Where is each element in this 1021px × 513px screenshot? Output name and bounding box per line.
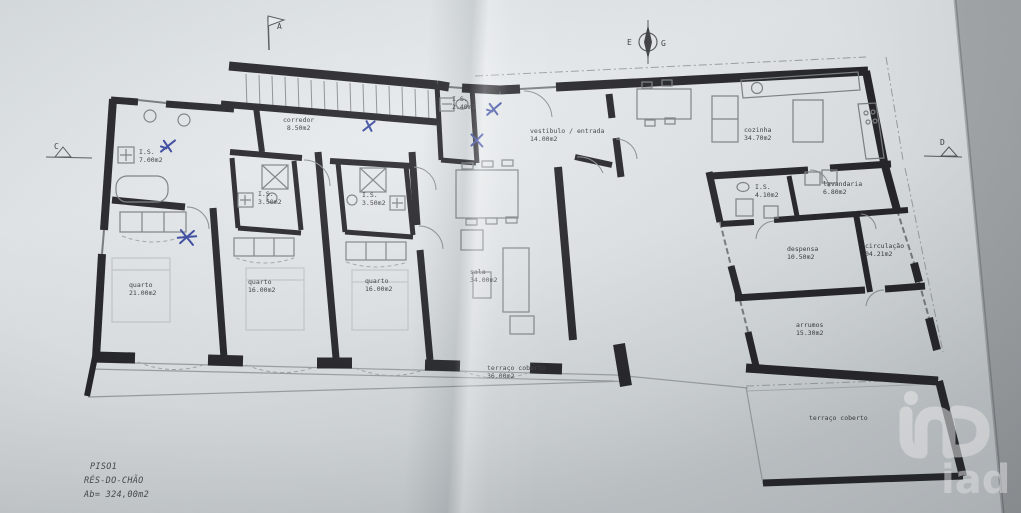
marker-letter-e: E bbox=[627, 38, 632, 47]
marker-letter-d: D bbox=[940, 138, 945, 147]
marker-letter-c: C bbox=[54, 142, 59, 151]
marker-letter-g: G bbox=[661, 39, 666, 48]
floorplan-photo: A C D E G bbox=[0, 0, 1021, 513]
floorplan-drawing: A C D E G bbox=[0, 0, 1021, 513]
marker-letter-a: A bbox=[277, 22, 282, 31]
paper-sheet bbox=[0, 0, 1003, 513]
watermark-text: iad bbox=[941, 457, 1010, 503]
